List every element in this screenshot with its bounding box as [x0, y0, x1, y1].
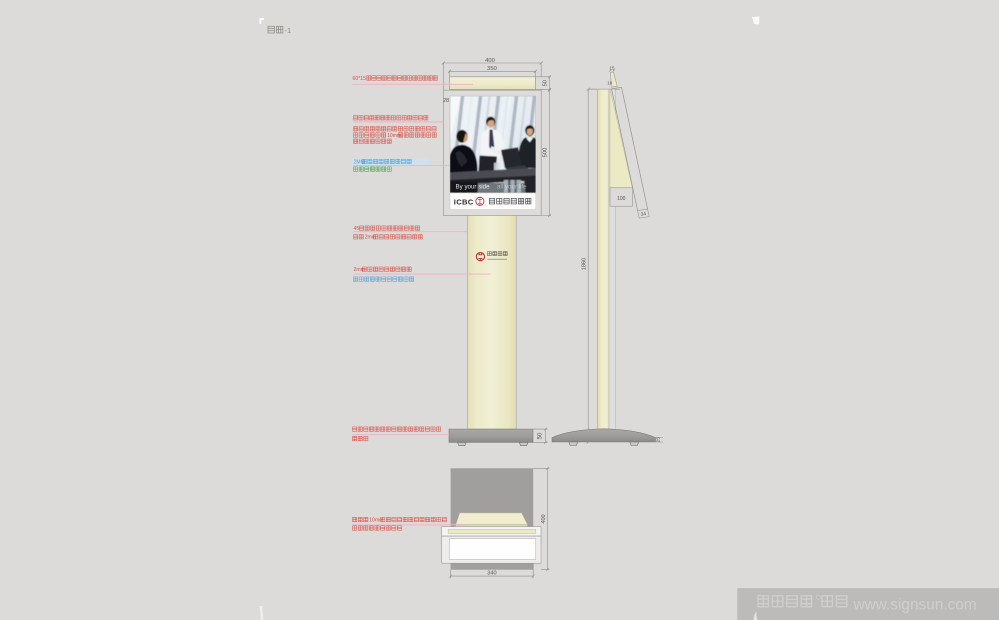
- svg-text:100: 100: [617, 196, 626, 202]
- svg-text:www.signsun.com: www.signsun.com: [853, 596, 977, 613]
- svg-text:10: 10: [607, 80, 613, 85]
- svg-text:By your side: By your side: [456, 183, 491, 190]
- svg-text:ICBC: ICBC: [454, 197, 474, 206]
- svg-text:10mm: 10mm: [387, 133, 401, 139]
- svg-text:2MM: 2MM: [354, 159, 365, 165]
- svg-text:50: 50: [542, 80, 548, 86]
- svg-text:400: 400: [541, 514, 547, 523]
- svg-text:25: 25: [656, 437, 662, 443]
- svg-text:350: 350: [487, 66, 497, 72]
- svg-text:400: 400: [485, 58, 495, 64]
- svg-text:50: 50: [537, 432, 543, 439]
- svg-text:2mm: 2mm: [365, 235, 376, 241]
- svg-text:45: 45: [354, 226, 360, 232]
- svg-text:340: 340: [487, 571, 496, 577]
- svg-text:10mm: 10mm: [369, 518, 383, 524]
- svg-text:all your life: all your life: [497, 183, 527, 190]
- svg-text:500: 500: [542, 148, 548, 158]
- svg-text:28: 28: [443, 98, 449, 104]
- svg-text:-1: -1: [285, 26, 292, 35]
- svg-text:60*15: 60*15: [353, 76, 366, 82]
- svg-text:1860: 1860: [582, 258, 588, 270]
